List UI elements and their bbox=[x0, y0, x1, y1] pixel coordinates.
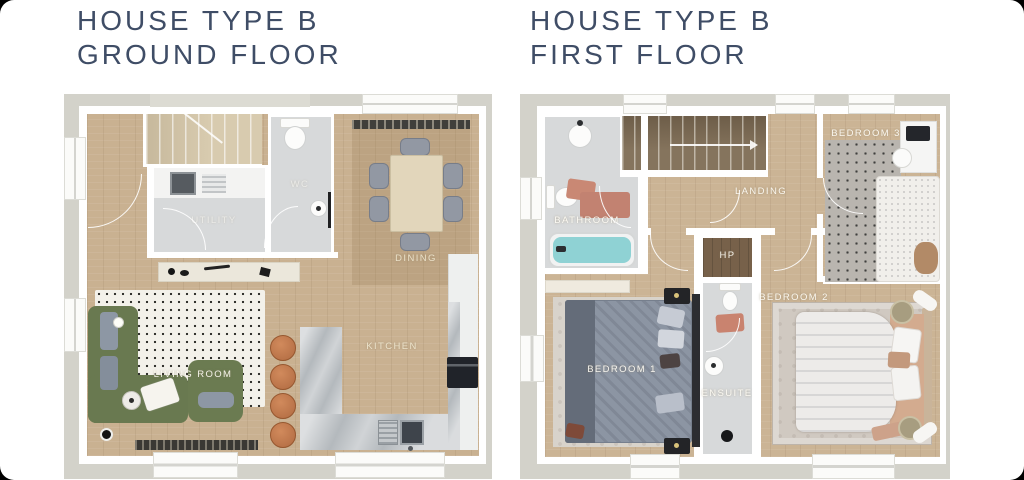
front-window bbox=[153, 452, 238, 478]
bedroom2-label: BEDROOM 2 bbox=[734, 290, 854, 304]
stairs-arrow-head bbox=[750, 140, 758, 150]
first-title-line2: FIRST FLOOR bbox=[530, 38, 772, 72]
hp-label: HP bbox=[702, 249, 753, 261]
floorplan-page: HOUSE TYPE B GROUND FLOOR HOUSE TYPE B F… bbox=[0, 0, 1024, 480]
sideboard-decor bbox=[180, 270, 189, 276]
bedroom1-label: BEDROOM 1 bbox=[562, 363, 682, 376]
dining-chair bbox=[443, 196, 463, 222]
bedroom1-wardrobe bbox=[545, 280, 630, 293]
dining-table bbox=[390, 155, 443, 232]
stairs-direction-arrow bbox=[670, 144, 750, 146]
bedroom3-left-wall bbox=[817, 114, 823, 178]
sideboard-decor bbox=[168, 268, 175, 275]
bedroom1-headboard bbox=[692, 294, 700, 447]
bar-stool bbox=[270, 393, 296, 419]
first-title-line1: HOUSE TYPE B bbox=[530, 4, 772, 38]
bathroom-sink bbox=[568, 124, 592, 148]
bathroom-bottom-wall bbox=[542, 268, 648, 274]
ground-title-line2: GROUND FLOOR bbox=[77, 38, 342, 72]
dining-chair bbox=[369, 163, 389, 189]
bedroom3-chair bbox=[892, 148, 912, 168]
side-window bbox=[64, 298, 86, 352]
nightstand-lamp bbox=[674, 293, 679, 298]
staircase bbox=[143, 114, 262, 167]
kitchen-label: KITCHEN bbox=[350, 340, 434, 353]
floor-lamp bbox=[114, 318, 123, 327]
side-window bbox=[520, 335, 544, 382]
bedroom3-blanket bbox=[914, 242, 938, 274]
ground-floor-plan: UTILITY WC DINING bbox=[64, 94, 492, 479]
bathroom-sink-tap bbox=[577, 120, 583, 126]
dining-window bbox=[362, 94, 458, 114]
rear-window bbox=[848, 94, 895, 114]
bedroom3-label: BEDROOM 3 bbox=[814, 127, 918, 139]
rear-window bbox=[775, 94, 815, 114]
dining-runner bbox=[352, 120, 470, 129]
front-window bbox=[630, 454, 680, 479]
ensuite-label: ENSUITE bbox=[692, 387, 762, 399]
bathroom-toilet-cistern bbox=[546, 185, 555, 209]
first-floor-plan: BATHROOM LANDING HP ENSUITE bbox=[520, 94, 950, 479]
bedroom1-pillow bbox=[655, 392, 685, 414]
bathroom-right-wall bbox=[641, 114, 648, 271]
dining-chair bbox=[400, 138, 430, 156]
ground-floor-title: HOUSE TYPE B GROUND FLOOR bbox=[77, 4, 342, 72]
kitchen-faucet bbox=[408, 446, 413, 451]
bedroom1-pillow bbox=[657, 329, 684, 349]
kitchen-sink bbox=[400, 420, 424, 445]
hp-ensuite-right-wall bbox=[755, 228, 761, 457]
landing-wall bbox=[641, 228, 651, 235]
side-table-decor bbox=[129, 398, 134, 403]
nightstand-lamp bbox=[674, 443, 679, 448]
utility-sink bbox=[170, 172, 196, 195]
rear-window bbox=[623, 94, 667, 114]
bedroom2-pillow bbox=[890, 365, 921, 402]
bar-stool bbox=[270, 364, 296, 390]
ground-title-line1: HOUSE TYPE B bbox=[77, 4, 342, 38]
bar-stool bbox=[270, 335, 296, 361]
dining-chair bbox=[443, 163, 463, 189]
wc-basin-drain bbox=[316, 206, 321, 211]
armchair-cushion bbox=[198, 392, 234, 408]
bedroom3-left-wall bbox=[817, 214, 823, 282]
front-window bbox=[812, 454, 895, 479]
sink-drainer bbox=[378, 420, 398, 445]
side-window bbox=[64, 137, 86, 200]
sofa-cushion bbox=[100, 356, 118, 390]
ensuite-bin bbox=[721, 430, 733, 442]
kitchen-base-counter bbox=[300, 414, 448, 450]
wc-toilet bbox=[284, 126, 306, 150]
bedroom1-bench bbox=[565, 423, 585, 440]
bedroom2-accent-pillow bbox=[888, 351, 911, 368]
front-window bbox=[335, 452, 445, 478]
dining-chair bbox=[369, 196, 389, 222]
wc-label: WC bbox=[277, 178, 323, 191]
porch-roof bbox=[150, 94, 310, 107]
first-floor-title: HOUSE TYPE B FIRST FLOOR bbox=[530, 4, 772, 72]
doormat bbox=[135, 440, 258, 450]
hall-wall bbox=[150, 252, 338, 258]
living-room-label: LIVING ROOM bbox=[123, 368, 263, 381]
dining-chair bbox=[400, 233, 430, 251]
wc-door-frame-mark bbox=[328, 192, 331, 228]
bedroom2-pouf bbox=[890, 300, 914, 324]
floor-socket bbox=[100, 428, 113, 441]
oven bbox=[447, 357, 478, 388]
bathtub-tap bbox=[556, 246, 566, 252]
bedroom2-duvet bbox=[796, 312, 896, 432]
utility-left-wall bbox=[147, 165, 153, 258]
utility-drainer bbox=[202, 174, 226, 193]
side-window bbox=[520, 177, 542, 220]
bar-stool bbox=[270, 422, 296, 448]
ensuite-sink-drain bbox=[711, 363, 716, 368]
